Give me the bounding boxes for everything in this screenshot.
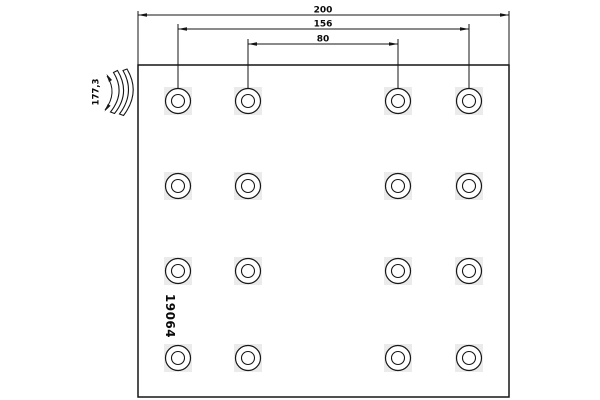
hole-inner-circle <box>172 352 185 365</box>
hole-inner-circle <box>392 180 405 193</box>
hole-inner-circle <box>463 180 476 193</box>
hole-inner-circle <box>242 95 255 108</box>
arrowhead-right <box>389 42 398 46</box>
technical-drawing-svg: 200 156 80 177,3 <box>0 0 600 400</box>
rivet-hole <box>234 87 262 115</box>
hole-inner-circle <box>392 352 405 365</box>
rivet-hole <box>384 87 412 115</box>
dimension-label-inner-spacing: 80 <box>317 35 330 45</box>
rivet-hole <box>455 257 483 285</box>
arc-arrowhead-top <box>107 74 113 82</box>
rivet-hole <box>234 172 262 200</box>
rivet-hole <box>164 344 192 372</box>
hole-inner-circle <box>242 180 255 193</box>
hole-inner-circle <box>463 352 476 365</box>
arc-arrowhead-bottom <box>105 104 111 112</box>
rivet-hole <box>455 344 483 372</box>
arrowhead-right <box>460 27 469 31</box>
arrowhead-left <box>178 27 187 31</box>
hole-inner-circle <box>392 265 405 278</box>
hole-inner-circle <box>172 180 185 193</box>
arrowhead-left <box>248 42 257 46</box>
dimension-label-total-width: 200 <box>314 6 333 16</box>
hole-inner-circle <box>242 265 255 278</box>
rivet-hole <box>384 344 412 372</box>
lining-plate-outline <box>138 65 509 397</box>
arrowhead-left <box>138 13 147 17</box>
brake-lining-drawing: 200 156 80 177,3 <box>0 0 600 400</box>
arc-length-label: 177,3 <box>92 78 102 105</box>
rivet-hole <box>164 257 192 285</box>
rivet-hole <box>164 172 192 200</box>
hole-inner-circle <box>392 95 405 108</box>
hole-inner-circle <box>242 352 255 365</box>
part-number-label: 19064 <box>163 294 177 338</box>
rivet-hole <box>384 172 412 200</box>
rivet-hole <box>234 344 262 372</box>
rivet-hole <box>234 257 262 285</box>
hole-inner-circle <box>463 95 476 108</box>
hole-inner-circle <box>172 95 185 108</box>
arrowhead-right <box>500 13 509 17</box>
rivet-hole <box>384 257 412 285</box>
dimension-label-outer-spacing: 156 <box>314 20 333 30</box>
rivet-hole <box>164 87 192 115</box>
hole-inner-circle <box>463 265 476 278</box>
hole-inner-circle <box>172 265 185 278</box>
curvature-symbol: 177,3 <box>92 69 134 116</box>
rivet-hole <box>455 87 483 115</box>
rivet-hole <box>455 172 483 200</box>
